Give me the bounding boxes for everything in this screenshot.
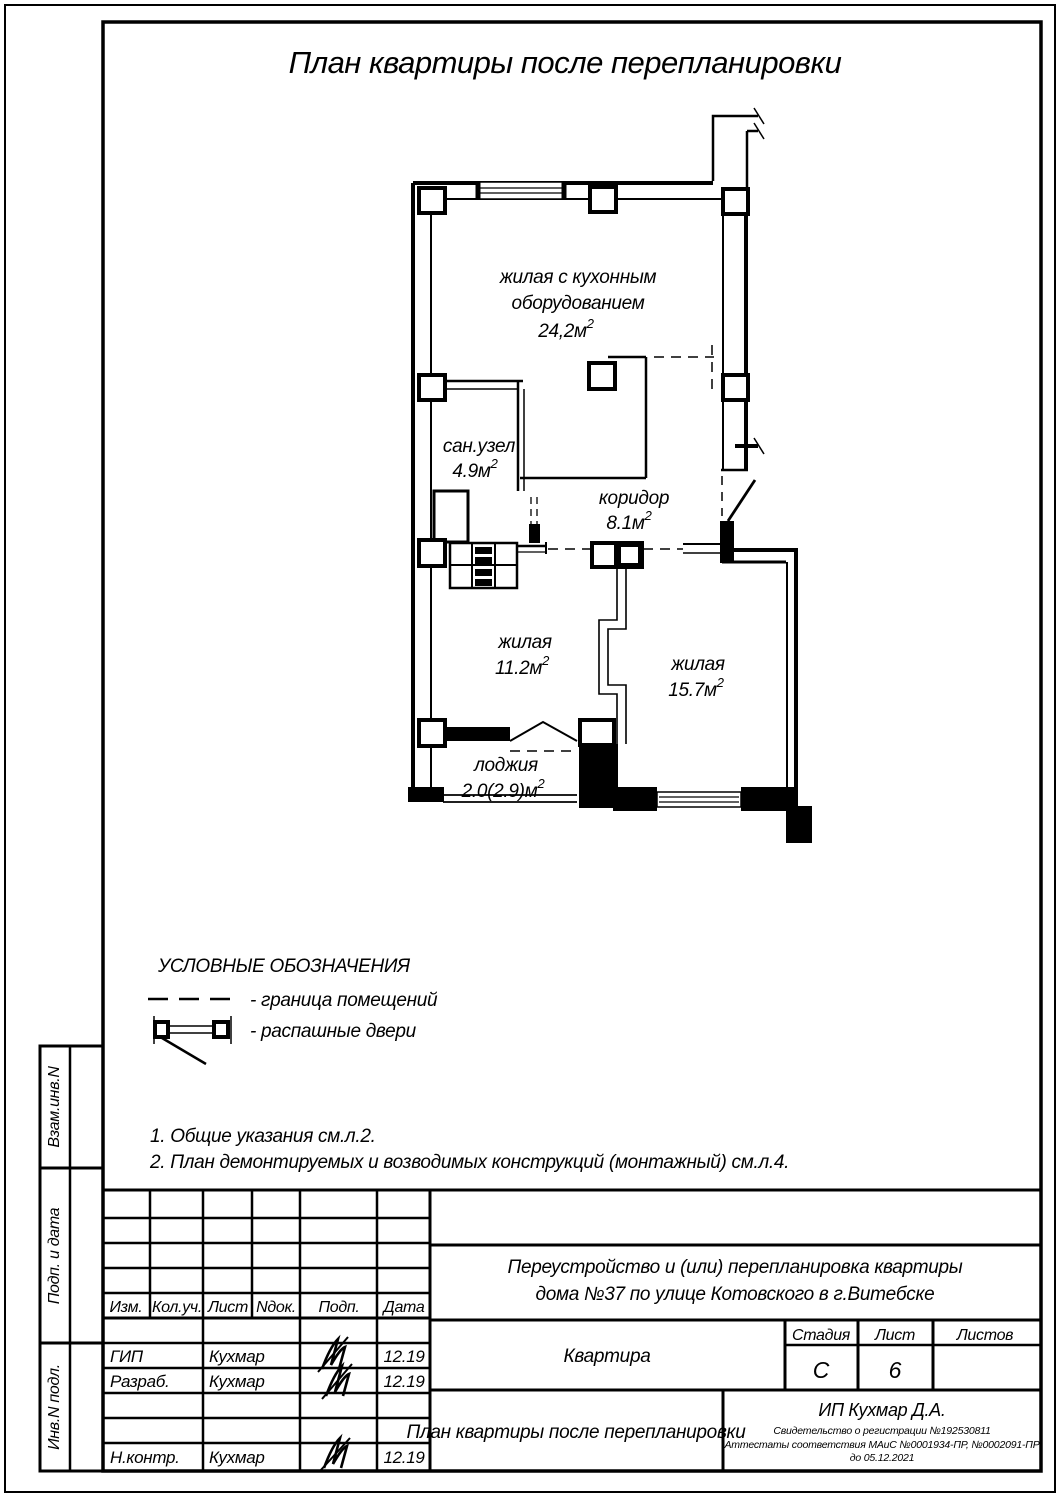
legend-item-doors: - распашные двери <box>250 1021 417 1042</box>
sheet-name: План квартиры после перепланировки <box>407 1422 747 1443</box>
row-razrab-role: Разраб. <box>110 1372 169 1391</box>
company-name: ИП Кухмар Д.А. <box>818 1400 945 1420</box>
drawing-canvas: План квартиры после перепланировки <box>0 0 1060 1500</box>
list-label: Лист <box>874 1327 915 1344</box>
room-label-bathroom: сан.узел <box>443 436 516 457</box>
room-area-loggia: 2.0(2.9)м2 <box>461 776 546 802</box>
room-label-living-1: жилая <box>497 632 552 653</box>
room-area-bathroom: 4.9м2 <box>452 456 498 482</box>
drawing-sheet: План квартиры после перепланировки <box>0 0 1060 1500</box>
room-area-living-1: 11.2м2 <box>495 653 550 679</box>
stage-label: Стадия <box>792 1327 851 1344</box>
floor-plan: жилая с кухонным оборудованием 24,2м2 са… <box>408 108 812 843</box>
swing-door-symbol <box>154 1016 231 1064</box>
col-podp: Подп. <box>318 1299 359 1316</box>
note-2: 2. План демонтируемых и возводимых конст… <box>149 1152 789 1173</box>
notes: 1. Общие указания см.л.2. 2. План демонт… <box>149 1126 789 1173</box>
sidebar: Взам.инв.N Подп. и дата Инв.N подл. <box>40 1046 103 1471</box>
row-nkontr-name: Кухмар <box>209 1448 265 1467</box>
row-gip-name: Кухмар <box>209 1347 265 1366</box>
company-valid: до 05.12.2021 <box>850 1452 915 1464</box>
list-value: 6 <box>889 1357 902 1383</box>
col-list: Лист <box>207 1299 248 1316</box>
project-name-line1: Переустройство и (или) перепланировка кв… <box>508 1257 963 1278</box>
legend-item-boundary: - граница помещений <box>250 990 438 1011</box>
company-attest: Аттестаты соответствия МАиС №0001934-ПР,… <box>723 1439 1039 1451</box>
row-gip-role: ГИП <box>110 1347 144 1366</box>
sidebar-label-podp: Подп. и дата <box>46 1207 63 1304</box>
col-ndok: Nдок. <box>256 1299 296 1316</box>
object-name: Квартира <box>564 1346 651 1367</box>
legend-title: УСЛОВНЫЕ ОБОЗНАЧЕНИЯ <box>157 956 410 977</box>
sidebar-label-inv: Инв.N подл. <box>46 1364 63 1450</box>
signature-strokes <box>318 1337 352 1471</box>
row-razrab-name: Кухмар <box>209 1372 265 1391</box>
room-label-living-2: жилая <box>670 654 725 675</box>
col-koluch: Кол.уч. <box>152 1299 202 1316</box>
stage-value: С <box>813 1357 830 1383</box>
project-name-line2: дома №37 по улице Котовского в г.Витебск… <box>536 1284 935 1305</box>
room-area-living-kitchen: 24,2м2 <box>537 316 595 342</box>
room-label-loggia: лоджия <box>473 755 538 776</box>
page-title: План квартиры после перепланировки <box>289 45 842 80</box>
room-label-living-kitchen: жилая с кухонным <box>499 267 657 288</box>
company-cert: Свидетельство о регистрации №192530811 <box>773 1425 990 1437</box>
room-area-corridor: 8.1м2 <box>606 508 652 534</box>
row-nkontr-role: Н.контр. <box>110 1448 180 1467</box>
room-label-living-kitchen-2: оборудованием <box>512 293 645 314</box>
col-izm: Изм. <box>110 1299 143 1316</box>
room-label-corridor: коридор <box>599 488 669 509</box>
row-gip-date: 12.19 <box>383 1347 425 1366</box>
row-nkontr-date: 12.19 <box>383 1448 425 1467</box>
title-block: Изм. Кол.уч. Лист Nдок. Подп. Дата ГИП К… <box>103 1190 1041 1471</box>
col-data: Дата <box>381 1299 424 1316</box>
sidebar-label-vzam: Взам.инв.N <box>46 1066 63 1148</box>
row-razrab-date: 12.19 <box>383 1372 425 1391</box>
room-area-living-2: 15.7м2 <box>668 675 725 701</box>
note-1: 1. Общие указания см.л.2. <box>150 1126 376 1147</box>
lists-label: Листов <box>956 1327 1013 1344</box>
legend: УСЛОВНЫЕ ОБОЗНАЧЕНИЯ - граница помещений… <box>148 956 438 1064</box>
